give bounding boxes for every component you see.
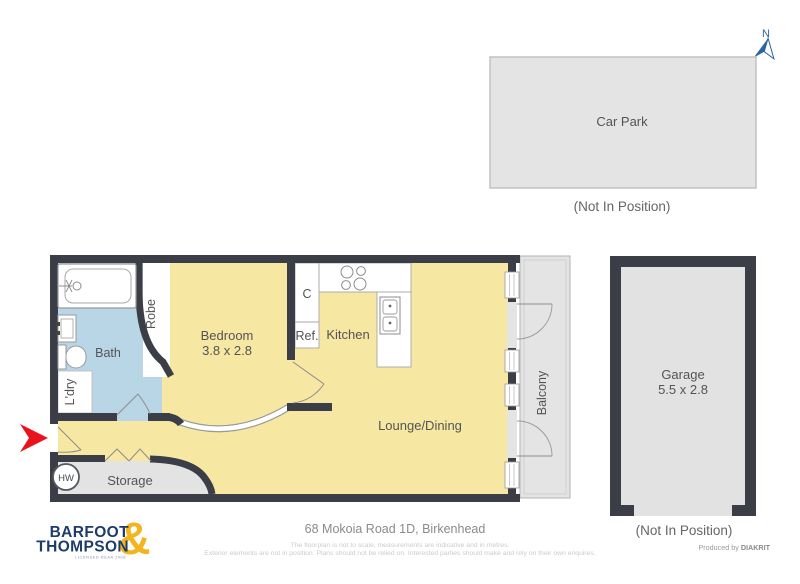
produced-by-text: Produced by DIAKRIT [698, 543, 770, 552]
barfoot-thompson-logo: & BARFOOT THOMPSON LICENSED REAA 2008 [36, 513, 150, 564]
north-compass-icon: N [754, 28, 778, 62]
logo-tagline: LICENSED REAA 2008 [75, 555, 126, 560]
garage-block: Garage 5.5 x 2.8 (Not In Position) [610, 256, 756, 538]
garage-dims: 5.5 x 2.8 [658, 382, 708, 397]
wall-top [50, 255, 520, 263]
car-park-label: Car Park [596, 114, 648, 129]
window-icon [505, 384, 519, 406]
window-icon [505, 272, 519, 298]
balcony-door-opening [507, 410, 517, 458]
toilet-icon [58, 345, 86, 369]
kitchen-label: Kitchen [326, 327, 369, 342]
hot-water-cylinder: HW [53, 464, 79, 490]
apartment-plan: HW Bath Robe L'dry Bedroom 3.8 x 2.8 C R… [20, 255, 570, 502]
wall-left-upper [50, 255, 58, 424]
garage-stub-right [732, 505, 745, 516]
north-needle-light [763, 38, 778, 59]
sink-icon [380, 297, 400, 334]
laundry-label: L'dry [63, 378, 77, 405]
lounge-label: Lounge/Dining [378, 418, 462, 433]
fridge-label: Ref. [296, 329, 319, 343]
car-park-block: Car Park (Not In Position) [490, 57, 756, 214]
vanity-sink-icon [57, 315, 77, 342]
bath-label: Bath [95, 346, 121, 360]
wall-bedroom-stub [287, 403, 332, 411]
wall-bath-left [58, 413, 117, 421]
storage-label: Storage [107, 473, 153, 488]
bedroom-dims: 3.8 x 2.8 [202, 343, 252, 358]
bedroom-label: Bedroom [201, 328, 254, 343]
garage-label: Garage [661, 367, 704, 382]
cupboard-label: C [302, 287, 311, 301]
garage-stub-left [621, 505, 634, 516]
floorplan-canvas: N Car Park (Not In Position) [0, 0, 800, 584]
disclaimer-line1: The floorplan is not to scale, measureme… [291, 542, 510, 549]
robe-label: Robe [144, 299, 158, 329]
car-park-note: (Not In Position) [574, 199, 671, 214]
balcony-label: Balcony [535, 370, 549, 415]
wall-bedroom-kitchen [287, 263, 295, 360]
wall-bottom [50, 494, 520, 502]
window-icon [505, 350, 519, 372]
garage-note: (Not In Position) [636, 523, 733, 538]
balcony-door-opening [507, 302, 517, 348]
disclaimer-line2: Exterior elements are not in position. P… [204, 550, 596, 557]
north-label: N [762, 28, 770, 40]
window-icon [505, 462, 519, 488]
logo-word2: THOMPSON [36, 539, 129, 556]
storage-wall [58, 455, 105, 462]
floorplan-page: N Car Park (Not In Position) [0, 0, 800, 584]
address-text: 68 Mokoia Road 1D, Birkenhead [305, 522, 486, 536]
entry-arrow-icon [20, 424, 48, 452]
hot-water-label: HW [58, 473, 74, 484]
bathtub-icon [58, 264, 136, 308]
